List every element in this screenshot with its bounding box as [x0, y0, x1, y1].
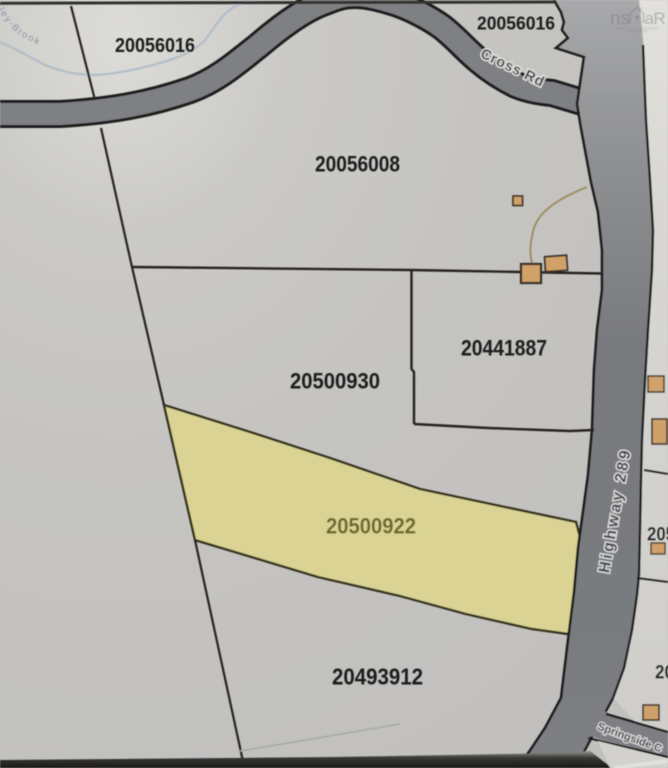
svg-text:20441887: 20441887 — [461, 336, 547, 361]
svg-text:205: 205 — [647, 525, 668, 546]
svg-text:20: 20 — [655, 663, 668, 684]
svg-text:20500930: 20500930 — [290, 369, 380, 394]
svg-text:20493912: 20493912 — [332, 664, 423, 690]
svg-text:20500922: 20500922 — [326, 514, 416, 539]
svg-text:20056008: 20056008 — [315, 152, 400, 177]
svg-text:20056016: 20056016 — [477, 13, 555, 34]
svg-text:20056016: 20056016 — [115, 35, 195, 57]
svg-text:OF REALTORS: OF REALTORS — [625, 29, 648, 33]
svg-text:aR: aR — [645, 9, 666, 28]
